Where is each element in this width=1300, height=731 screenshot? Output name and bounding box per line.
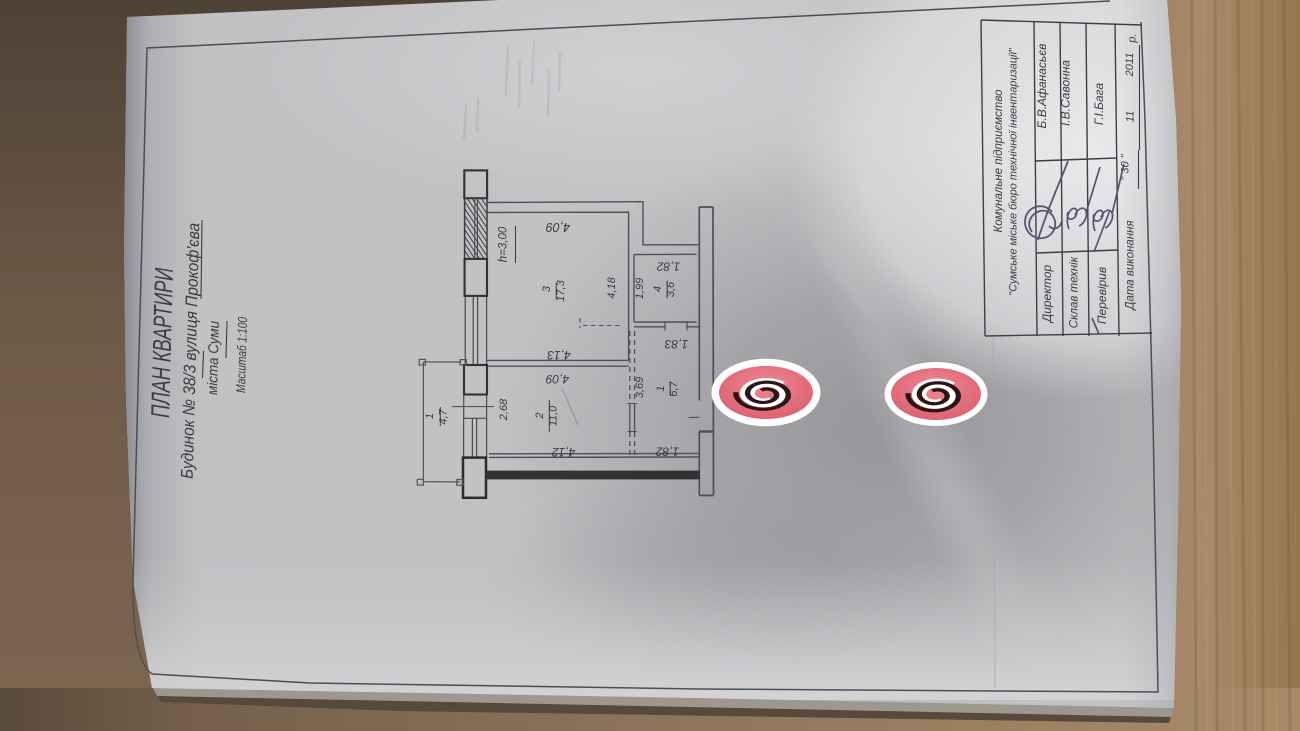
svg-text:h=3,00: h=3,00 (498, 226, 510, 262)
svg-text:4,13: 4,13 (547, 348, 571, 362)
svg-text:міста Суми: міста Суми (205, 321, 223, 395)
svg-text:Масштаб 1:100: Масштаб 1:100 (233, 316, 250, 393)
svg-text:4,12: 4,12 (551, 445, 575, 459)
svg-text:р.: р. (1127, 33, 1139, 43)
svg-text:1,82: 1,82 (656, 260, 680, 274)
svg-text:"Сумське міське бюро технічної: "Сумське міське бюро технічної інвентари… (1008, 47, 1020, 296)
svg-text:3,69: 3,69 (634, 377, 646, 398)
svg-text:2: 2 (534, 412, 546, 419)
svg-text:3: 3 (541, 285, 553, 292)
svg-text:Дата виконання: Дата виконання (1125, 220, 1137, 311)
svg-text:Г.І.Бага: Г.І.Бага (1092, 83, 1106, 126)
svg-text:1,82: 1,82 (655, 445, 679, 459)
svg-text:11: 11 (1125, 111, 1137, 122)
svg-text:ПЛАН КВАРТИРИ: ПЛАН КВАРТИРИ (145, 267, 179, 418)
svg-text:4,18: 4,18 (606, 276, 618, 298)
svg-text:Б.В.Афанасьєв: Б.В.Афанасьєв (1035, 44, 1049, 129)
svg-text:Комунальне підприємство: Комунальне підприємство (993, 89, 1005, 233)
svg-text:Директор: Директор (1040, 264, 1054, 324)
svg-text:2011: 2011 (1124, 53, 1136, 78)
svg-text:1: 1 (655, 385, 667, 391)
svg-text:4,09: 4,09 (546, 220, 570, 234)
svg-text:1: 1 (424, 413, 436, 419)
svg-text:Перевірив: Перевірив (1095, 267, 1109, 324)
svg-text:4: 4 (652, 286, 664, 292)
svg-text:17,3: 17,3 (555, 279, 567, 301)
svg-text:2,68: 2,68 (498, 398, 510, 421)
svg-text:4,09: 4,09 (545, 372, 569, 386)
svg-text:4,7: 4,7 (438, 408, 450, 424)
svg-text:1,99: 1,99 (634, 278, 646, 299)
svg-text:Склав технік: Склав технік (1069, 256, 1081, 328)
svg-text:І.В.Савонна: І.В.Савонна (1059, 60, 1073, 126)
svg-text:1,83: 1,83 (664, 337, 688, 351)
